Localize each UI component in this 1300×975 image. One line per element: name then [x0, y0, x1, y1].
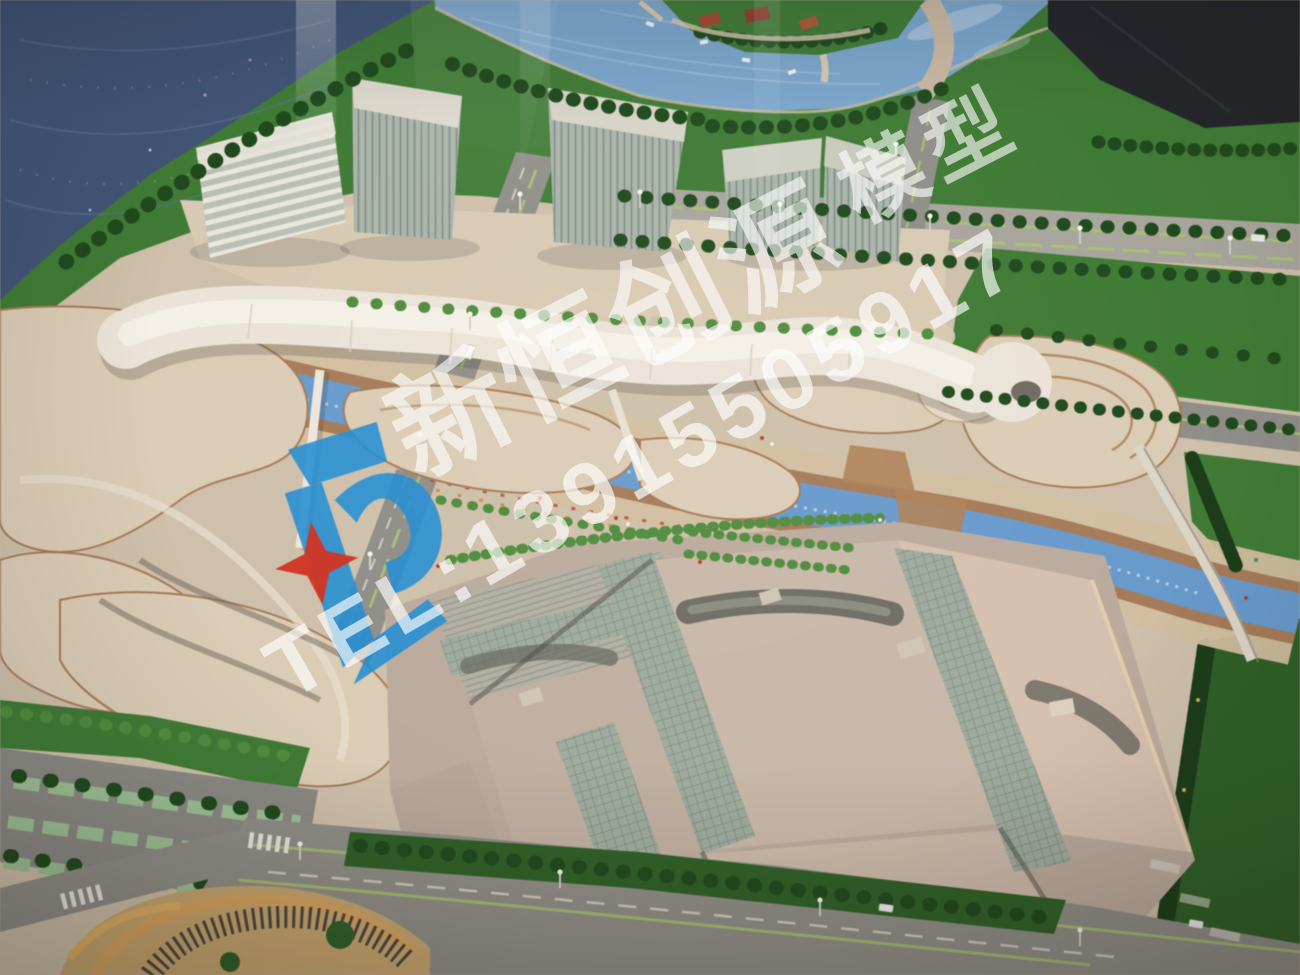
model-photo: 新恒创源模型 TEL:13915505917	[0, 0, 1300, 975]
scale-model-scene	[0, 0, 1300, 975]
